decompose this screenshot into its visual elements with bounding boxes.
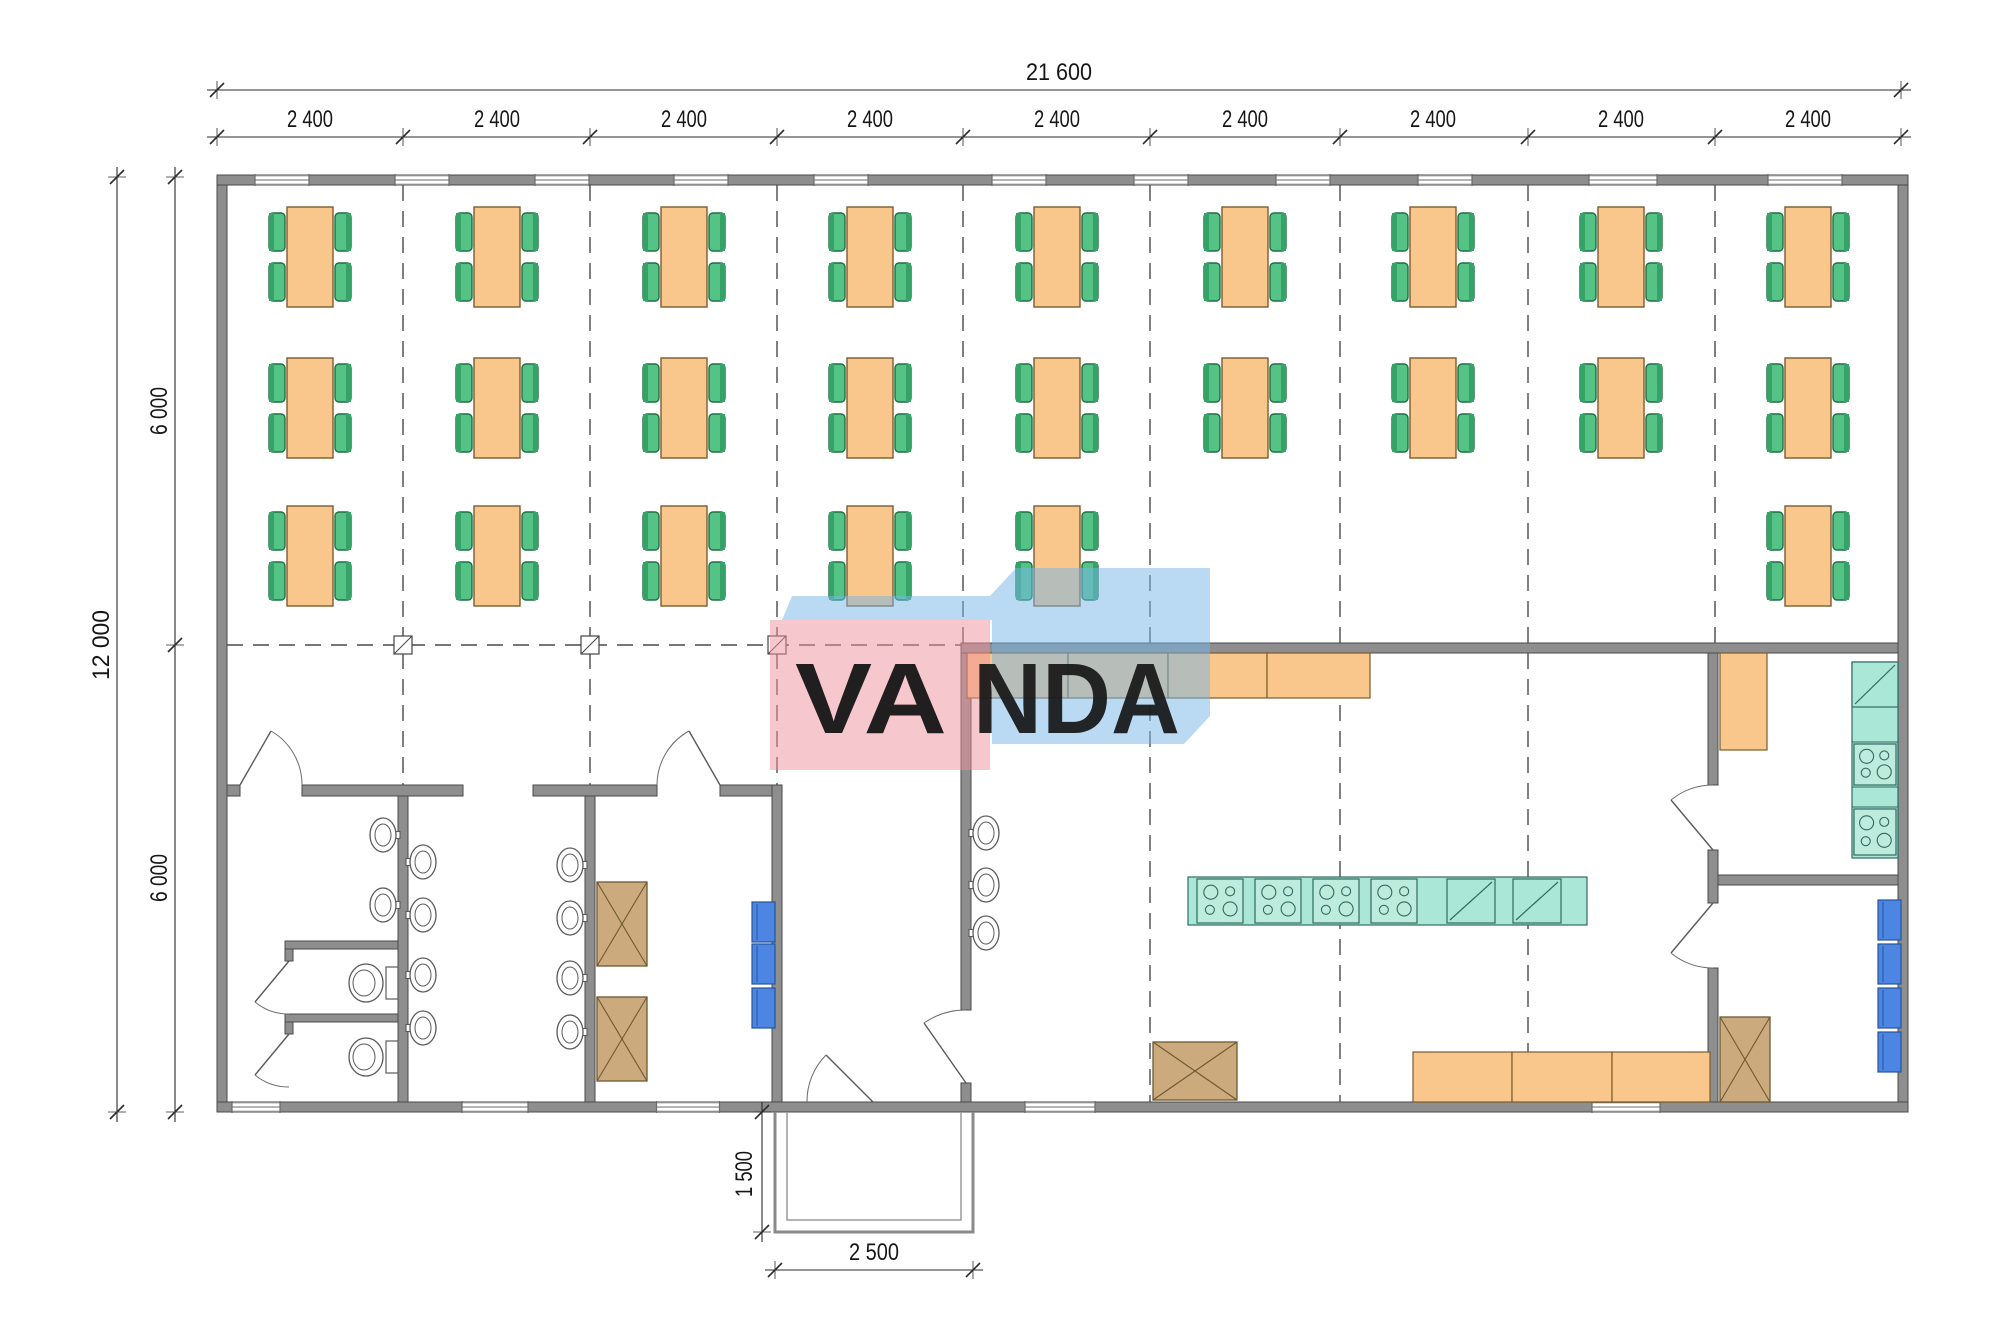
dining-table-group xyxy=(1767,506,1849,606)
chair-backrest xyxy=(1093,213,1098,251)
wall xyxy=(1718,875,1898,885)
column-symbol xyxy=(581,636,599,654)
wall xyxy=(1708,850,1718,903)
chair-backrest xyxy=(643,364,648,402)
watermark: VA NDA xyxy=(770,568,1210,770)
sink-bowl xyxy=(557,901,583,935)
heater-box xyxy=(1878,944,1901,984)
chair-backrest xyxy=(1844,562,1849,600)
sink-symbol xyxy=(557,901,587,935)
wall xyxy=(302,785,463,796)
chair-backrest xyxy=(1392,364,1397,402)
chair-backrest xyxy=(829,414,834,452)
table xyxy=(1410,358,1456,458)
chair-backrest xyxy=(456,364,461,402)
heater-box xyxy=(752,944,775,984)
table xyxy=(847,358,893,458)
dining-table-group xyxy=(829,358,911,458)
heater-box xyxy=(752,988,775,1028)
chair-backrest xyxy=(1657,364,1662,402)
stove-top xyxy=(1313,879,1359,923)
sink-symbol xyxy=(406,958,436,992)
water-heater-symbol xyxy=(1878,944,1901,984)
porch-step xyxy=(787,1112,961,1220)
chair-backrest xyxy=(720,213,725,251)
door xyxy=(1671,785,1713,850)
chair-backrest xyxy=(533,512,538,550)
chair-backrest xyxy=(1093,512,1098,550)
chair-backrest xyxy=(533,213,538,251)
window xyxy=(674,174,728,186)
chair-backrest xyxy=(533,562,538,600)
door xyxy=(255,1034,289,1087)
table xyxy=(1785,506,1831,606)
dining-table-group xyxy=(1204,207,1286,307)
door-leaf xyxy=(826,1055,873,1102)
chair-backrest xyxy=(1657,414,1662,452)
chair-backrest xyxy=(1204,364,1209,402)
chair-backrest xyxy=(1767,263,1772,301)
dimension-label-bay: 2 400 xyxy=(847,106,893,133)
sink-bowl xyxy=(410,845,436,879)
dining-table-group xyxy=(643,506,725,606)
door xyxy=(657,731,720,785)
door xyxy=(255,961,289,1014)
chair-backrest xyxy=(1281,364,1286,402)
doors-layer xyxy=(240,731,1713,1232)
sink-symbol xyxy=(370,888,400,922)
dimension-label-bay: 2 400 xyxy=(661,106,707,133)
chair-backrest xyxy=(1580,213,1585,251)
door-leaf xyxy=(689,731,720,785)
window xyxy=(1418,174,1472,186)
sink-symbol xyxy=(969,816,999,850)
chair-backrest xyxy=(1204,414,1209,452)
dimension-label-bay: 2 400 xyxy=(1598,106,1644,133)
counter xyxy=(1512,1052,1612,1102)
sink-bowl xyxy=(973,816,999,850)
chair-backrest xyxy=(456,213,461,251)
dimension-label-bay: 2 400 xyxy=(1222,106,1268,133)
sink-symbol xyxy=(406,845,436,879)
chair-backrest xyxy=(829,562,834,600)
dining-table-group xyxy=(1204,358,1286,458)
cabinet-x-symbol xyxy=(597,997,647,1081)
sink-symbol xyxy=(557,1015,587,1049)
dining-table-group xyxy=(269,358,351,458)
water-heater-symbol xyxy=(752,902,775,942)
chair-backrest xyxy=(906,263,911,301)
chair-backrest xyxy=(643,263,648,301)
column-symbol xyxy=(394,636,412,654)
door xyxy=(807,1055,873,1102)
dimension-label-bay: 2 400 xyxy=(1410,106,1456,133)
wall xyxy=(1708,653,1718,785)
chair-backrest xyxy=(1844,364,1849,402)
chair-backrest xyxy=(1093,414,1098,452)
chair-backrest xyxy=(720,414,725,452)
appliance-diagonal-symbol xyxy=(1447,879,1495,923)
chair-backrest xyxy=(829,364,834,402)
chair-backrest xyxy=(346,414,351,452)
window xyxy=(1592,1101,1660,1113)
window xyxy=(657,1101,720,1113)
dimension-label-total-height: 12 000 xyxy=(88,610,115,680)
cabinet-x-symbol xyxy=(597,882,647,966)
dining-table-group xyxy=(1016,358,1098,458)
sink-symbol xyxy=(406,898,436,932)
table xyxy=(474,207,520,307)
chair-backrest xyxy=(1844,213,1849,251)
table xyxy=(1598,358,1644,458)
chair-backrest xyxy=(1204,263,1209,301)
chair-backrest xyxy=(1281,414,1286,452)
wall xyxy=(285,949,293,961)
chair-backrest xyxy=(269,562,274,600)
door-swing-arc xyxy=(255,1075,289,1087)
heater-box xyxy=(1878,1032,1901,1072)
door-swing-arc xyxy=(271,731,302,785)
table xyxy=(847,207,893,307)
table xyxy=(474,358,520,458)
chair-backrest xyxy=(1016,512,1021,550)
toilet-tank xyxy=(386,1041,398,1073)
wall xyxy=(227,785,240,796)
chair-backrest xyxy=(1657,213,1662,251)
chair-backrest xyxy=(1281,263,1286,301)
water-heater-symbol xyxy=(1878,988,1901,1028)
dining-table-group xyxy=(456,207,538,307)
chair-backrest xyxy=(1281,213,1286,251)
sink-symbol xyxy=(406,1011,436,1045)
dimension-label-half-height: 6 000 xyxy=(146,854,173,902)
stove-top xyxy=(1371,879,1417,923)
sink-bowl xyxy=(410,898,436,932)
chair-backrest xyxy=(346,364,351,402)
chair-backrest xyxy=(1844,512,1849,550)
chair-backrest xyxy=(1767,213,1772,251)
chair-backrest xyxy=(1016,213,1021,251)
watermark-text-back: NDA xyxy=(973,643,1180,755)
sink-bowl xyxy=(410,958,436,992)
dining-table-group xyxy=(1580,358,1662,458)
heater-box xyxy=(752,902,775,942)
water-heater-symbol xyxy=(752,944,775,984)
counter xyxy=(1267,653,1370,698)
window xyxy=(255,174,309,186)
sink-bowl xyxy=(557,848,583,882)
stove-symbol xyxy=(1371,879,1417,923)
dimension-label-bay: 2 400 xyxy=(287,106,333,133)
wall xyxy=(398,796,408,1102)
door-swing-arc xyxy=(1671,785,1713,800)
window xyxy=(395,174,449,186)
chair-backrest xyxy=(1657,263,1662,301)
chair-backrest xyxy=(456,512,461,550)
sink-bowl xyxy=(973,916,999,950)
table xyxy=(1222,358,1268,458)
cabinet-x-symbol xyxy=(1153,1042,1237,1100)
dining-table-group xyxy=(1392,207,1474,307)
sink-symbol xyxy=(557,961,587,995)
table xyxy=(661,506,707,606)
appliance-diagonal-symbol xyxy=(1852,662,1898,707)
stove-symbol xyxy=(1854,809,1896,855)
chair-backrest xyxy=(1204,213,1209,251)
sink-bowl xyxy=(973,868,999,902)
door-leaf xyxy=(924,1023,966,1083)
sink-bowl xyxy=(370,888,396,922)
table xyxy=(1034,358,1080,458)
sink-bowl xyxy=(557,961,583,995)
chair-backrest xyxy=(1767,562,1772,600)
chair-backrest xyxy=(643,213,648,251)
chair-backrest xyxy=(1580,263,1585,301)
chair-backrest xyxy=(269,512,274,550)
door-swing-arc xyxy=(807,1055,826,1102)
chair-backrest xyxy=(346,512,351,550)
chair-backrest xyxy=(1844,263,1849,301)
heater-box xyxy=(1878,988,1901,1028)
dining-table-group xyxy=(643,207,725,307)
dining-table-group xyxy=(1767,207,1849,307)
window xyxy=(1025,1101,1095,1113)
door-leaf xyxy=(1671,903,1713,953)
chair-backrest xyxy=(720,364,725,402)
stove-top xyxy=(1854,744,1896,785)
floor-plan-drawing: 21 600 12 000 1 500 2 500 2 4002 4002 40… xyxy=(0,0,2000,1338)
wall xyxy=(285,941,398,949)
window xyxy=(462,1101,528,1113)
sink-bowl xyxy=(557,1015,583,1049)
chair-backrest xyxy=(1093,263,1098,301)
water-heater-symbol xyxy=(1878,900,1901,940)
chair-backrest xyxy=(533,414,538,452)
wall xyxy=(285,1014,398,1022)
door xyxy=(924,1010,966,1083)
window xyxy=(1134,174,1188,186)
door-swing-arc xyxy=(255,1002,289,1014)
dining-table-group xyxy=(643,358,725,458)
dining-table-group xyxy=(456,358,538,458)
door-swing-arc xyxy=(657,731,689,785)
heater-box xyxy=(1878,900,1901,940)
chair-backrest xyxy=(1392,414,1397,452)
door-leaf xyxy=(1671,800,1713,850)
table xyxy=(287,207,333,307)
dimension-label-porch-width: 2 500 xyxy=(849,1239,899,1266)
chair-backrest xyxy=(643,562,648,600)
chair-backrest xyxy=(1580,414,1585,452)
chair-backrest xyxy=(1016,414,1021,452)
stove-top xyxy=(1255,879,1301,923)
wall xyxy=(961,1083,971,1102)
window xyxy=(1589,174,1657,186)
chair-backrest xyxy=(533,364,538,402)
stove-symbol xyxy=(1313,879,1359,923)
chair-backrest xyxy=(1767,364,1772,402)
stove-top xyxy=(1854,809,1896,855)
chair-backrest xyxy=(1844,414,1849,452)
sink-symbol xyxy=(969,868,999,902)
dining-table-group xyxy=(1767,358,1849,458)
chair-backrest xyxy=(269,213,274,251)
dimension-label-total-width: 21 600 xyxy=(1026,59,1092,86)
chair-backrest xyxy=(1392,213,1397,251)
chair-backrest xyxy=(829,213,834,251)
dining-table-group xyxy=(829,207,911,307)
sink-symbol xyxy=(370,818,400,852)
table xyxy=(287,506,333,606)
stove-symbol xyxy=(1255,879,1301,923)
wall xyxy=(217,185,227,1102)
table xyxy=(1034,207,1080,307)
dining-table-group xyxy=(1016,207,1098,307)
table xyxy=(474,506,520,606)
chair-backrest xyxy=(829,512,834,550)
chair-backrest xyxy=(533,263,538,301)
door-leaf xyxy=(255,1034,289,1075)
porch-outline xyxy=(775,1112,973,1232)
dimension-label-bay: 2 400 xyxy=(1034,106,1080,133)
table xyxy=(1410,207,1456,307)
dimension-label-bay: 2 400 xyxy=(474,106,520,133)
chair-backrest xyxy=(906,364,911,402)
chair-backrest xyxy=(346,213,351,251)
chair-backrest xyxy=(1016,263,1021,301)
chair-backrest xyxy=(643,512,648,550)
counter xyxy=(1720,653,1767,750)
door xyxy=(240,731,302,785)
sink-symbol xyxy=(969,916,999,950)
chair-backrest xyxy=(643,414,648,452)
water-heater-symbol xyxy=(752,988,775,1028)
sink-symbol xyxy=(557,848,587,882)
counter xyxy=(1413,1052,1512,1102)
chair-backrest xyxy=(1469,213,1474,251)
chair-backrest xyxy=(1469,263,1474,301)
table xyxy=(1598,207,1644,307)
water-heater-symbol xyxy=(1878,1032,1901,1072)
window xyxy=(1276,174,1330,186)
table xyxy=(1222,207,1268,307)
dining-table-group xyxy=(1392,358,1474,458)
door-leaf xyxy=(255,961,289,1002)
appliance-diagonal-symbol xyxy=(1513,879,1561,923)
door-swing-arc xyxy=(1671,953,1713,968)
chair-backrest xyxy=(269,364,274,402)
dimension-label-bay: 2 400 xyxy=(1785,106,1831,133)
stove-symbol xyxy=(1854,744,1896,785)
window xyxy=(1768,174,1842,186)
dining-table-group xyxy=(1580,207,1662,307)
chair-backrest xyxy=(269,263,274,301)
floor-plan-canvas: 21 600 12 000 1 500 2 500 2 4002 4002 40… xyxy=(0,0,2000,1338)
chair-backrest xyxy=(1469,364,1474,402)
door xyxy=(1671,903,1713,968)
chair-backrest xyxy=(906,562,911,600)
chair-backrest xyxy=(346,263,351,301)
chair-backrest xyxy=(1580,364,1585,402)
wall xyxy=(533,785,657,796)
dimension-label-half-height: 6 000 xyxy=(146,387,173,435)
chair-backrest xyxy=(1392,263,1397,301)
window xyxy=(814,174,868,186)
chair-backrest xyxy=(720,512,725,550)
window xyxy=(232,1101,280,1113)
table xyxy=(287,358,333,458)
window xyxy=(992,174,1046,186)
door-swing-arc xyxy=(924,1010,966,1023)
door-leaf xyxy=(240,731,271,785)
chair-backrest xyxy=(906,213,911,251)
chair-backrest xyxy=(1016,364,1021,402)
table xyxy=(661,207,707,307)
toilet-symbol xyxy=(349,1038,398,1076)
sink-bowl xyxy=(370,818,396,852)
chair-backrest xyxy=(720,562,725,600)
chair-backrest xyxy=(720,263,725,301)
chair-backrest xyxy=(346,562,351,600)
table xyxy=(1785,207,1831,307)
chair-backrest xyxy=(456,414,461,452)
table xyxy=(847,506,893,606)
table xyxy=(661,358,707,458)
dining-table-group xyxy=(456,506,538,606)
wall xyxy=(285,1022,293,1034)
chair-backrest xyxy=(1093,364,1098,402)
cabinet-x-symbol xyxy=(1720,1017,1770,1102)
chair-backrest xyxy=(1767,414,1772,452)
window xyxy=(535,174,589,186)
dining-table-group xyxy=(829,506,911,606)
chair-backrest xyxy=(269,414,274,452)
chair-backrest xyxy=(906,414,911,452)
chair-backrest xyxy=(906,512,911,550)
dimension-label-porch-depth: 1 500 xyxy=(731,1151,758,1197)
dining-table-group xyxy=(269,207,351,307)
wall xyxy=(585,796,595,1102)
counter xyxy=(1612,1052,1710,1102)
chair-backrest xyxy=(829,263,834,301)
sink-bowl xyxy=(410,1011,436,1045)
chair-backrest xyxy=(1767,512,1772,550)
chair-backrest xyxy=(456,263,461,301)
watermark-text-front: VA xyxy=(795,643,947,755)
dining-table-group xyxy=(269,506,351,606)
stove-symbol xyxy=(1197,879,1243,923)
stove-top xyxy=(1197,879,1243,923)
table xyxy=(1785,358,1831,458)
chair-backrest xyxy=(1469,414,1474,452)
toilet-symbol xyxy=(349,964,398,1002)
toilet-tank xyxy=(386,967,398,999)
chair-backrest xyxy=(456,562,461,600)
